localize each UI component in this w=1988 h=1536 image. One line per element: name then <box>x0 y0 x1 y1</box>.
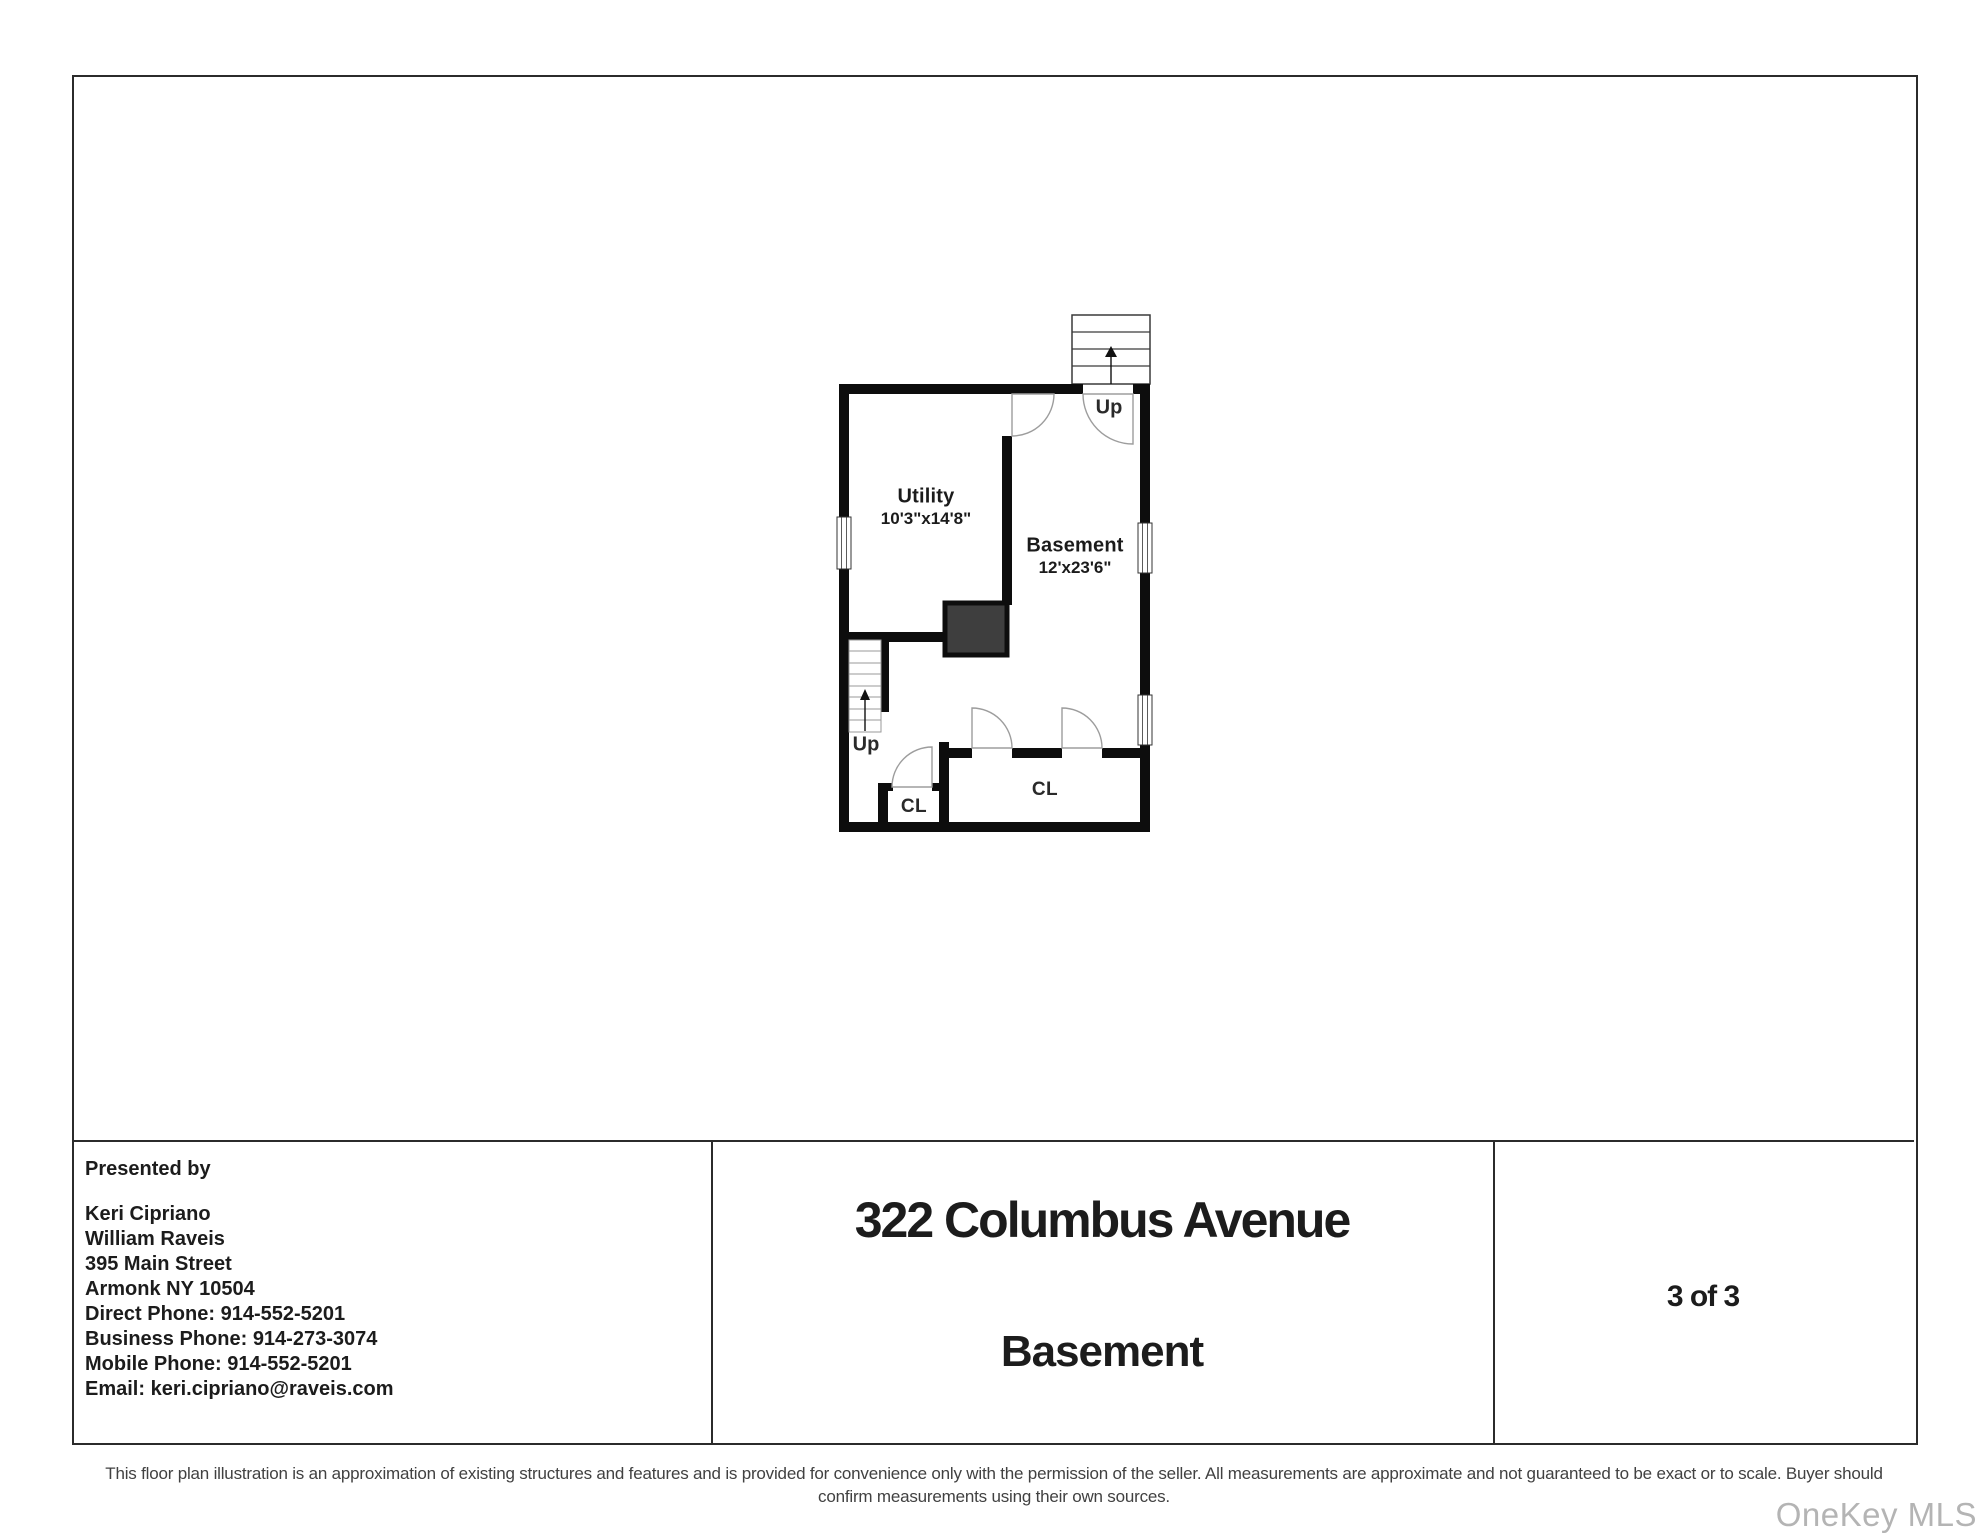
wall-left-lower <box>839 569 849 832</box>
agent-mobile-phone: Mobile Phone: 914-552-5201 <box>85 1352 394 1377</box>
agent-direct-phone: Direct Phone: 914-552-5201 <box>85 1302 394 1327</box>
room-dims-basement: 12'x23'6" <box>1039 558 1112 578</box>
footer: Presented by Keri Cipriano William Ravei… <box>72 1140 1914 1445</box>
room-label-utility: Utility <box>898 486 955 509</box>
page-indicator: 3 of 3 <box>1667 1280 1739 1314</box>
property-address-title: 322 Columbus Avenue <box>855 1191 1350 1249</box>
doors <box>892 394 1133 787</box>
agent-business-phone: Business Phone: 914-273-3074 <box>85 1327 394 1352</box>
door-utility <box>1012 394 1054 436</box>
window-right-lower <box>1138 695 1152 745</box>
window-left <box>837 517 851 569</box>
wall-left-upper <box>839 394 849 517</box>
wall-bottom <box>839 822 1150 832</box>
wall-top-left-segment <box>839 384 1083 394</box>
wall-closet-large-c <box>1102 748 1140 758</box>
window-right-upper <box>1138 523 1152 573</box>
closet-label-large: CL <box>1032 779 1058 801</box>
wall-right-upper <box>1140 394 1150 523</box>
furnace-block <box>945 603 1007 655</box>
agent-city: Armonk NY 10504 <box>85 1277 394 1302</box>
stairs-bottom <box>849 640 881 732</box>
agent-info-block: Keri Cipriano William Raveis 395 Main St… <box>85 1202 394 1402</box>
wall-right-lower <box>1140 745 1150 832</box>
wall-top-right-post <box>1133 384 1150 394</box>
wall-closet-large-a <box>949 748 972 758</box>
agent-company: William Raveis <box>85 1227 394 1252</box>
floor-plan-drawing <box>800 290 1180 850</box>
agent-name: Keri Cipriano <box>85 1202 394 1227</box>
stairs-up-label-bottom: Up <box>853 734 880 757</box>
wall-closet-divider <box>939 742 949 822</box>
door-closet-large-left <box>972 708 1012 748</box>
presented-by-label: Presented by <box>85 1158 211 1181</box>
door-closet-large-right <box>1062 708 1102 748</box>
onekey-mls-watermark: OneKey MLS <box>1776 1496 1977 1534</box>
stairs-up-label-top: Up <box>1096 397 1123 420</box>
footer-divider-left <box>711 1142 713 1445</box>
wall-closet-large-b <box>1012 748 1062 758</box>
disclaimer: This floor plan illustration is an appro… <box>0 1462 1988 1508</box>
disclaimer-line-2: confirm measurements using their own sou… <box>0 1485 1988 1508</box>
door-closet-small <box>892 747 932 787</box>
agent-street: 395 Main Street <box>85 1252 394 1277</box>
room-label-basement: Basement <box>1026 535 1123 558</box>
closet-label-small: CL <box>901 796 927 818</box>
wall-closet-small-top-a <box>878 783 893 791</box>
footer-divider-right <box>1493 1142 1495 1445</box>
floor-name-title: Basement <box>1001 1327 1203 1377</box>
disclaimer-line-1: This floor plan illustration is an appro… <box>0 1462 1988 1485</box>
wall-interior-vertical <box>1002 436 1012 605</box>
agent-email: Email: keri.cipriano@raveis.com <box>85 1377 394 1402</box>
room-dims-utility: 10'3"x14'8" <box>881 509 971 529</box>
wall-right-middle <box>1140 573 1150 695</box>
stairs-top <box>1072 315 1150 384</box>
floor-plan-page: { "plan": { "rooms": [ { "name": "Utilit… <box>0 0 1988 1536</box>
